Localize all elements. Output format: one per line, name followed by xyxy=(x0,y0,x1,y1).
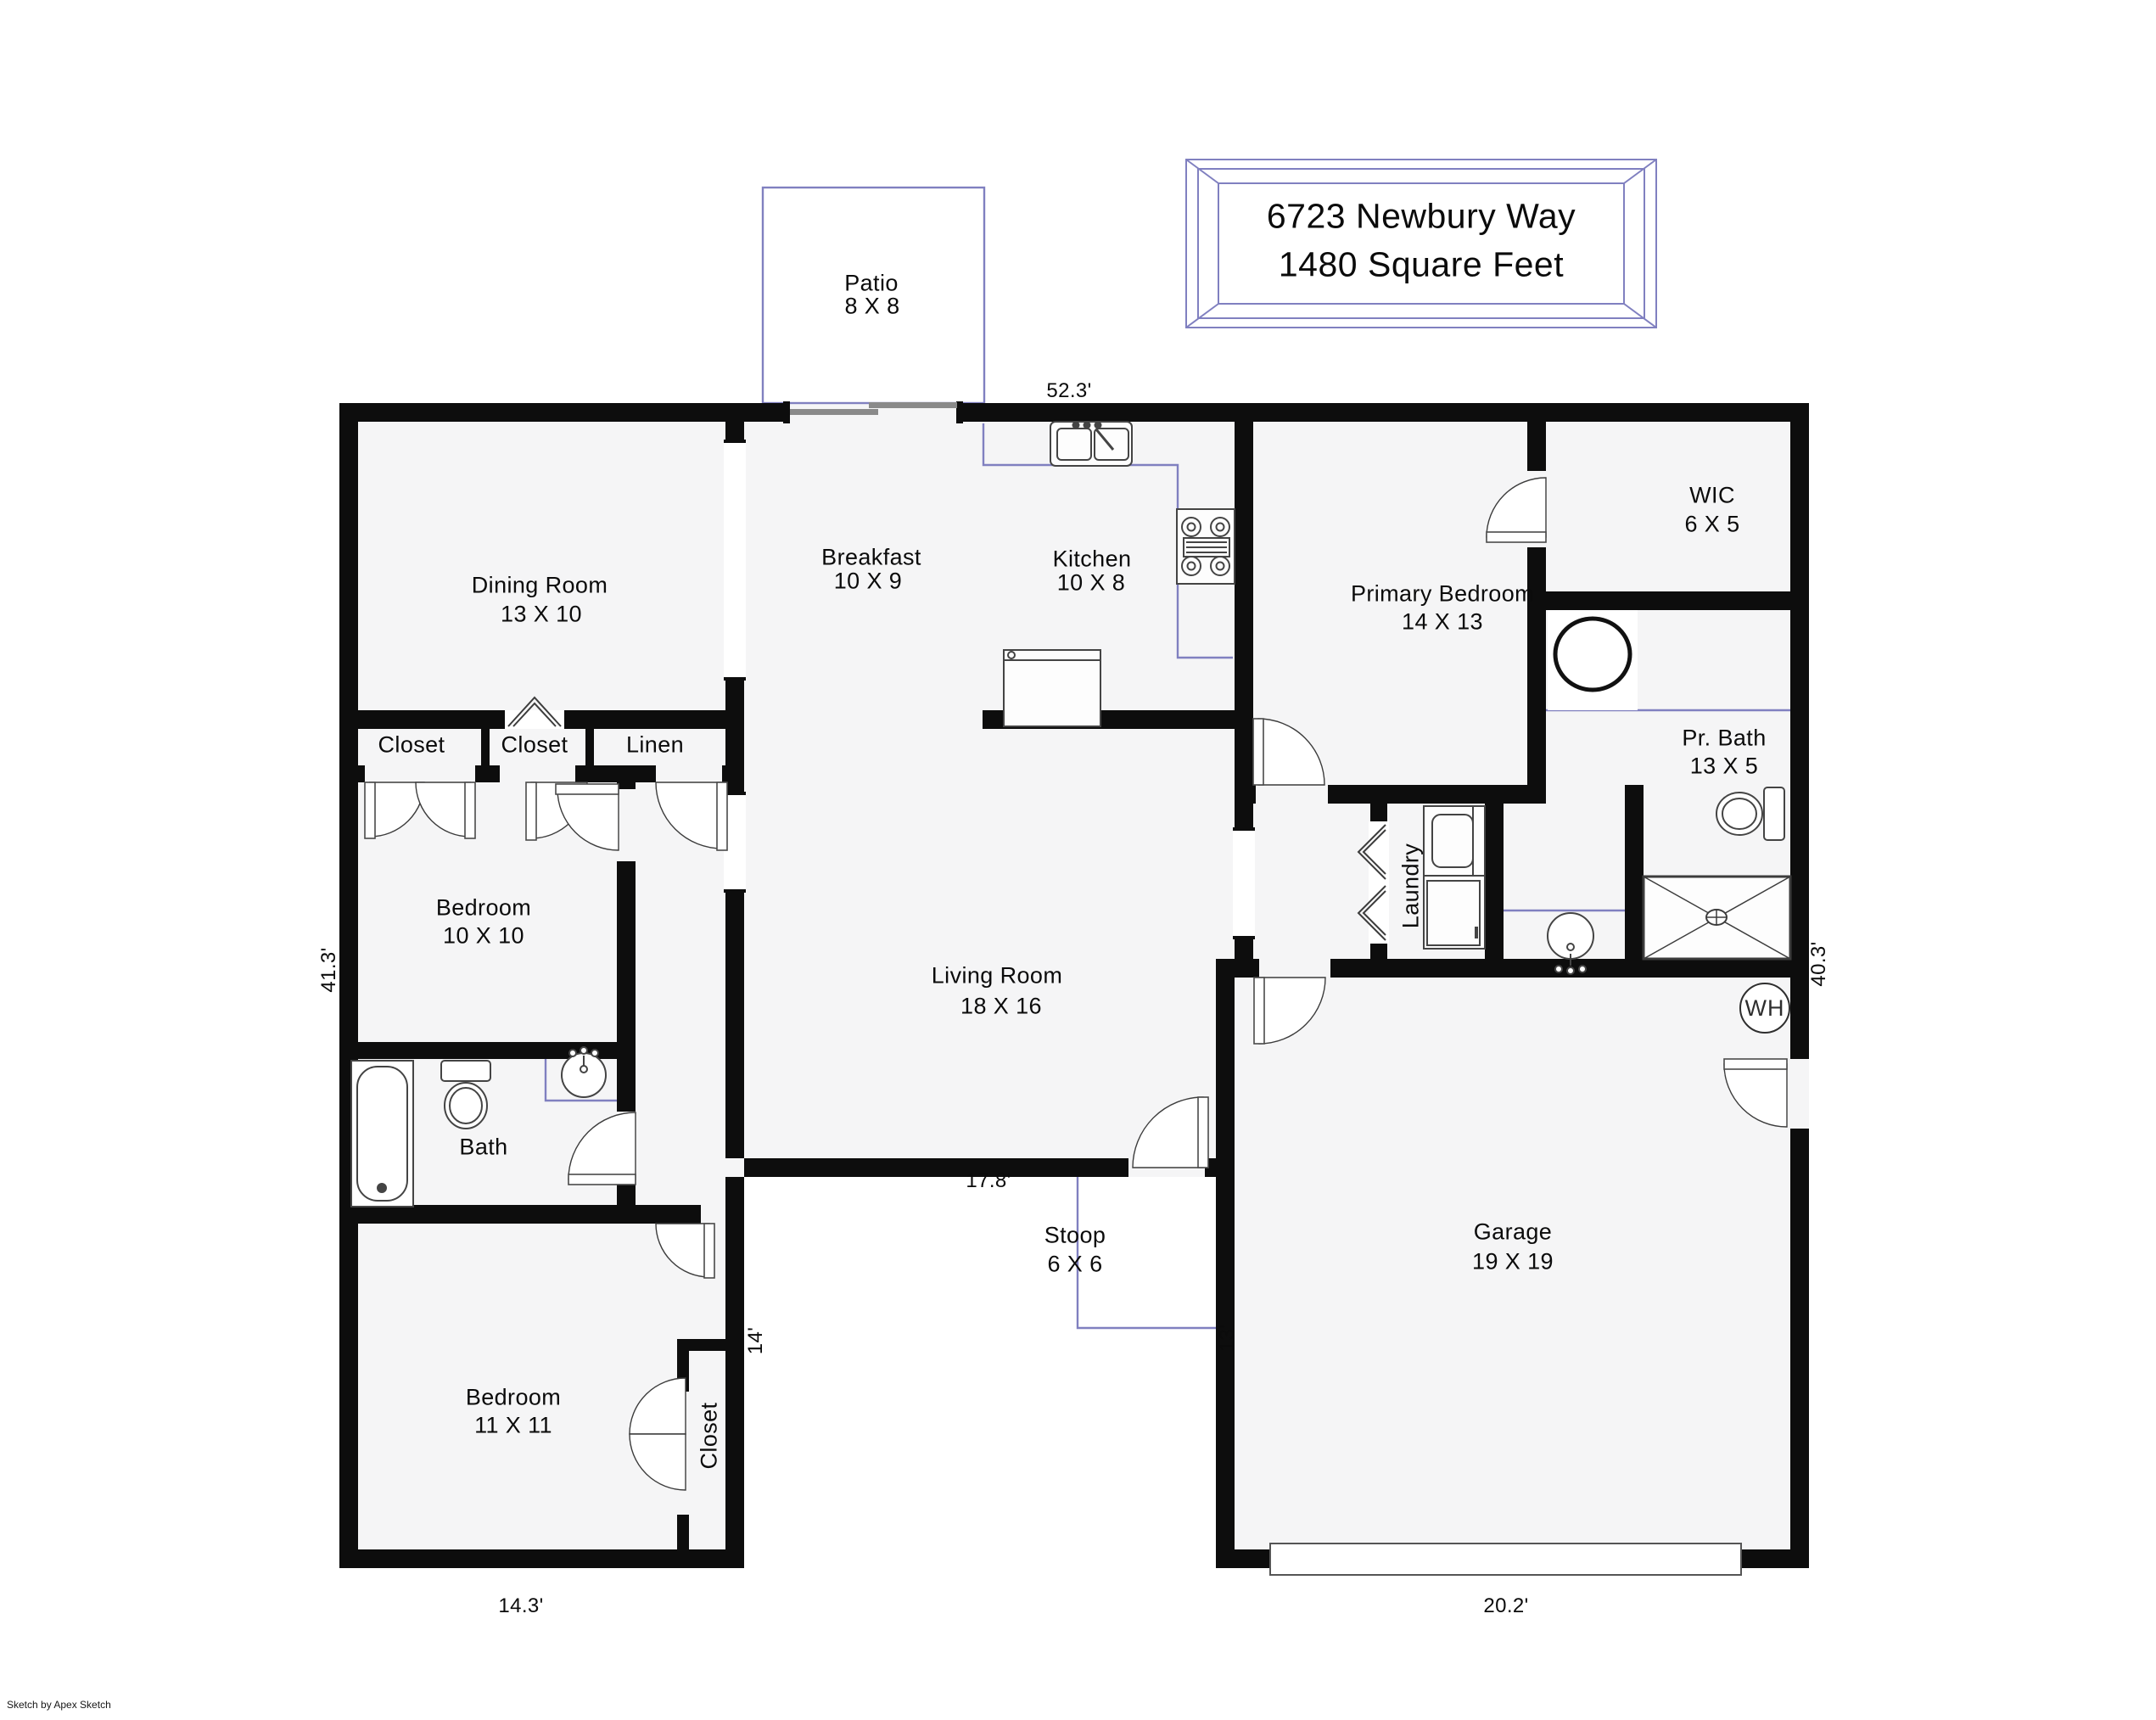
laundry-label: Laundry xyxy=(1398,843,1425,928)
floorplan-page: 6723 Newbury Way 1480 Square Feet Patio … xyxy=(0,0,2156,1720)
floorplan-canvas xyxy=(0,0,2156,1720)
toilet xyxy=(441,1061,490,1129)
linen-label: Linen xyxy=(626,732,684,759)
bedroom1-label: Bedroom xyxy=(436,895,531,922)
dim-garage-bottom: 20.2' xyxy=(1483,1594,1528,1618)
living-room-label: Living Room xyxy=(932,963,1062,989)
dim-right: 40.3' xyxy=(1807,941,1831,986)
garage-dims: 19 X 19 xyxy=(1472,1249,1554,1275)
prbath-toilet xyxy=(1716,787,1784,840)
kitchen-label: Kitchen xyxy=(1053,546,1132,573)
stoop-dims: 6 X 6 xyxy=(1047,1252,1102,1278)
dim-living-bottom: 17.8' xyxy=(966,1169,1011,1193)
bedroom1-dims: 10 X 10 xyxy=(443,923,524,950)
title-block-frame xyxy=(1186,160,1656,328)
wic-dims: 6 X 5 xyxy=(1684,512,1739,538)
dim-wing-bottom: 14.3' xyxy=(498,1594,543,1618)
primary-bedroom-label: Primary Bedroom xyxy=(1351,581,1534,608)
bedroom2-label: Bedroom xyxy=(466,1385,561,1411)
dim-wing-side: 14' xyxy=(744,1327,768,1354)
bath-label: Bath xyxy=(459,1135,507,1161)
dim-top: 52.3' xyxy=(1046,379,1091,403)
kitchen-dims: 10 X 8 xyxy=(1057,570,1125,597)
breakfast-label: Breakfast xyxy=(821,545,921,571)
washer-dryer xyxy=(1424,806,1485,949)
refrigerator xyxy=(1004,650,1100,726)
dining-label: Dining Room xyxy=(472,573,608,599)
closet-b-label: Closet xyxy=(501,732,568,759)
primary-bedroom-dims: 14 X 13 xyxy=(1402,609,1483,636)
title-square-feet: 1480 Square Feet xyxy=(1279,245,1564,285)
garden-tub xyxy=(1548,610,1638,710)
dining-dims: 13 X 10 xyxy=(501,602,582,628)
shower xyxy=(1644,877,1790,959)
pr-bath-label: Pr. Bath xyxy=(1682,726,1766,752)
title-address: 6723 Newbury Way xyxy=(1267,197,1576,237)
wic-label: WIC xyxy=(1689,483,1735,509)
living-room-dims: 18 X 16 xyxy=(960,994,1042,1020)
garage-label: Garage xyxy=(1474,1219,1552,1246)
pr-bath-dims: 13 X 5 xyxy=(1690,754,1758,780)
bedroom2-dims: 11 X 11 xyxy=(474,1413,552,1439)
credit-text: Sketch by Apex Sketch xyxy=(7,1699,111,1711)
breakfast-dims: 10 X 9 xyxy=(834,569,902,595)
dim-stoop-side: 13' xyxy=(1216,1325,1240,1352)
bathtub xyxy=(351,1061,413,1207)
stoop-label: Stoop xyxy=(1044,1223,1106,1249)
garage-door-panel xyxy=(1270,1544,1741,1575)
kitchen-sink xyxy=(1050,422,1132,466)
closet-a-label: Closet xyxy=(378,732,445,759)
patio-dims: 8 X 8 xyxy=(844,294,899,320)
stove xyxy=(1177,509,1235,584)
water-heater-icon: WH xyxy=(1739,983,1790,1034)
closet-c-label: Closet xyxy=(697,1403,723,1470)
dim-left: 41.3' xyxy=(317,947,341,992)
